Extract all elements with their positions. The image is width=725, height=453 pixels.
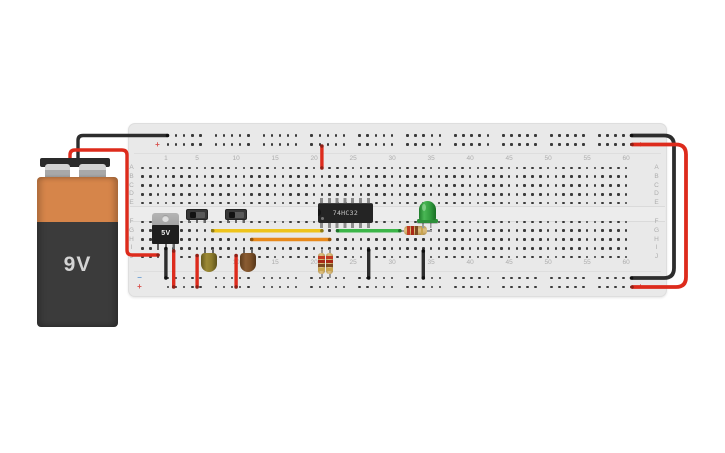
breadboard-hole[interactable] <box>500 175 503 178</box>
breadboard-hole[interactable] <box>360 238 363 241</box>
breadboard-hole[interactable] <box>582 134 585 137</box>
breadboard-hole[interactable] <box>570 238 573 241</box>
breadboard-hole[interactable] <box>366 134 369 137</box>
breadboard-hole[interactable] <box>188 229 191 232</box>
breadboard-hole[interactable] <box>562 238 565 241</box>
breadboard-hole[interactable] <box>484 175 487 178</box>
breadboard-hole[interactable] <box>609 193 612 196</box>
breadboard-hole[interactable] <box>487 134 490 137</box>
breadboard-hole[interactable] <box>531 175 534 178</box>
breadboard-hole[interactable] <box>211 184 214 187</box>
breadboard-hole[interactable] <box>367 238 370 241</box>
breadboard-hole[interactable] <box>614 134 617 137</box>
breadboard-hole[interactable] <box>258 229 261 232</box>
breadboard-hole[interactable] <box>344 229 347 232</box>
breadboard-hole[interactable] <box>282 184 285 187</box>
breadboard-hole[interactable] <box>344 184 347 187</box>
breadboard-hole[interactable] <box>531 238 534 241</box>
breadboard-hole[interactable] <box>500 238 503 241</box>
breadboard-hole[interactable] <box>336 175 339 178</box>
breadboard-hole[interactable] <box>594 184 597 187</box>
breadboard-hole[interactable] <box>594 247 597 250</box>
breadboard-hole[interactable] <box>305 247 308 250</box>
regulator-body[interactable]: 5V <box>152 225 179 244</box>
breadboard-hole[interactable] <box>141 238 144 241</box>
breadboard-hole[interactable] <box>263 134 266 137</box>
breadboard-hole[interactable] <box>422 247 425 250</box>
breadboard-hole[interactable] <box>606 134 609 137</box>
breadboard-hole[interactable] <box>149 247 152 250</box>
breadboard-hole[interactable] <box>414 143 417 146</box>
breadboard-hole[interactable] <box>289 229 292 232</box>
breadboard-hole[interactable] <box>487 143 490 146</box>
breadboard-hole[interactable] <box>199 143 202 146</box>
breadboard-hole[interactable] <box>438 238 441 241</box>
breadboard-hole[interactable] <box>431 134 434 137</box>
breadboard-hole[interactable] <box>319 134 322 137</box>
breadboard-hole[interactable] <box>594 238 597 241</box>
battery-body[interactable]: 9V <box>37 177 118 327</box>
breadboard-hole[interactable] <box>516 238 519 241</box>
breadboard-hole[interactable] <box>191 277 194 280</box>
breadboard-hole[interactable] <box>211 238 214 241</box>
breadboard-hole[interactable] <box>227 175 230 178</box>
breadboard-hole[interactable] <box>204 238 207 241</box>
breadboard-hole[interactable] <box>598 143 601 146</box>
breadboard-hole[interactable] <box>149 238 152 241</box>
breadboard-hole[interactable] <box>211 175 214 178</box>
breadboard-hole[interactable] <box>414 184 417 187</box>
breadboard-hole[interactable] <box>319 143 322 146</box>
breadboard-hole[interactable] <box>574 143 577 146</box>
breadboard-hole[interactable] <box>375 143 378 146</box>
breadboard-hole[interactable] <box>367 247 370 250</box>
breadboard-hole[interactable] <box>266 238 269 241</box>
breadboard-hole[interactable] <box>617 238 620 241</box>
breadboard-hole[interactable] <box>617 175 620 178</box>
breadboard-hole[interactable] <box>406 184 409 187</box>
switch-body[interactable] <box>186 209 208 220</box>
breadboard-hole[interactable] <box>461 184 464 187</box>
breadboard-hole[interactable] <box>141 247 144 250</box>
breadboard-hole[interactable] <box>375 229 378 232</box>
breadboard-hole[interactable] <box>297 247 300 250</box>
breadboard-hole[interactable] <box>500 184 503 187</box>
breadboard-hole[interactable] <box>614 143 617 146</box>
breadboard-hole[interactable] <box>445 229 448 232</box>
breadboard-hole[interactable] <box>477 184 480 187</box>
breadboard-hole[interactable] <box>562 184 565 187</box>
breadboard-hole[interactable] <box>484 193 487 196</box>
switch-body[interactable] <box>225 209 247 220</box>
breadboard-hole[interactable] <box>617 193 620 196</box>
breadboard-hole[interactable] <box>344 175 347 178</box>
breadboard-hole[interactable] <box>263 143 266 146</box>
breadboard-hole[interactable] <box>502 143 505 146</box>
breadboard-hole[interactable] <box>243 184 246 187</box>
breadboard-hole[interactable] <box>609 175 612 178</box>
breadboard-hole[interactable] <box>305 175 308 178</box>
breadboard-hole[interactable] <box>172 193 175 196</box>
breadboard-hole[interactable] <box>502 134 505 137</box>
breadboard-hole[interactable] <box>555 184 558 187</box>
breadboard-hole[interactable] <box>562 247 565 250</box>
breadboard-hole[interactable] <box>383 193 386 196</box>
breadboard-hole[interactable] <box>282 238 285 241</box>
breadboard-hole[interactable] <box>336 238 339 241</box>
breadboard-hole[interactable] <box>578 247 581 250</box>
breadboard-hole[interactable] <box>484 229 487 232</box>
breadboard-hole[interactable] <box>453 238 456 241</box>
breadboard-hole[interactable] <box>454 134 457 137</box>
breadboard-hole[interactable] <box>199 277 202 280</box>
breadboard-hole[interactable] <box>453 247 456 250</box>
breadboard-hole[interactable] <box>211 229 214 232</box>
breadboard-hole[interactable] <box>305 238 308 241</box>
breadboard-hole[interactable] <box>289 247 292 250</box>
breadboard-hole[interactable] <box>258 175 261 178</box>
breadboard-hole[interactable] <box>199 286 202 289</box>
breadboard-hole[interactable] <box>531 184 534 187</box>
breadboard-hole[interactable] <box>297 175 300 178</box>
breadboard-hole[interactable] <box>539 247 542 250</box>
breadboard-hole[interactable] <box>558 134 561 137</box>
breadboard-hole[interactable] <box>422 134 425 137</box>
breadboard-hole[interactable] <box>422 193 425 196</box>
breadboard-hole[interactable] <box>518 143 521 146</box>
breadboard-hole[interactable] <box>523 247 526 250</box>
breadboard-hole[interactable] <box>470 134 473 137</box>
breadboard-hole[interactable] <box>414 175 417 178</box>
breadboard-hole[interactable] <box>609 238 612 241</box>
breadboard-hole[interactable] <box>250 193 253 196</box>
breadboard-hole[interactable] <box>601 175 604 178</box>
breadboard-hole[interactable] <box>562 229 565 232</box>
breadboard-hole[interactable] <box>453 184 456 187</box>
breadboard-hole[interactable] <box>555 193 558 196</box>
breadboard-hole[interactable] <box>360 193 363 196</box>
breadboard-hole[interactable] <box>523 175 526 178</box>
breadboard-hole[interactable] <box>539 184 542 187</box>
breadboard-hole[interactable] <box>562 193 565 196</box>
breadboard-hole[interactable] <box>445 193 448 196</box>
breadboard-hole[interactable] <box>188 184 191 187</box>
breadboard-hole[interactable] <box>570 184 573 187</box>
breadboard-hole[interactable] <box>531 193 534 196</box>
breadboard-hole[interactable] <box>539 238 542 241</box>
breadboard-hole[interactable] <box>630 143 633 146</box>
breadboard-hole[interactable] <box>250 184 253 187</box>
breadboard-hole[interactable] <box>484 184 487 187</box>
breadboard-hole[interactable] <box>453 175 456 178</box>
breadboard-hole[interactable] <box>289 238 292 241</box>
breadboard-hole[interactable] <box>406 238 409 241</box>
breadboard-hole[interactable] <box>360 247 363 250</box>
breadboard-hole[interactable] <box>578 175 581 178</box>
breadboard-hole[interactable] <box>578 238 581 241</box>
switch-knob[interactable] <box>190 212 197 218</box>
breadboard-hole[interactable] <box>219 238 222 241</box>
breadboard-hole[interactable] <box>453 193 456 196</box>
breadboard-hole[interactable] <box>582 143 585 146</box>
breadboard-hole[interactable] <box>282 193 285 196</box>
breadboard-hole[interactable] <box>617 247 620 250</box>
breadboard-hole[interactable] <box>227 184 230 187</box>
breadboard-hole[interactable] <box>243 238 246 241</box>
breadboard-hole[interactable] <box>367 184 370 187</box>
breadboard-hole[interactable] <box>344 193 347 196</box>
breadboard-hole[interactable] <box>266 229 269 232</box>
breadboard-hole[interactable] <box>328 175 331 178</box>
breadboard-hole[interactable] <box>500 247 503 250</box>
breadboard-hole[interactable] <box>188 247 191 250</box>
breadboard-hole[interactable] <box>219 247 222 250</box>
breadboard-hole[interactable] <box>297 184 300 187</box>
breadboard-hole[interactable] <box>258 184 261 187</box>
breadboard-hole[interactable] <box>165 193 168 196</box>
breadboard-hole[interactable] <box>321 238 324 241</box>
breadboard-hole[interactable] <box>406 143 409 146</box>
breadboard-hole[interactable] <box>609 229 612 232</box>
breadboard-hole[interactable] <box>578 229 581 232</box>
breadboard-hole[interactable] <box>438 247 441 250</box>
breadboard-hole[interactable] <box>558 143 561 146</box>
breadboard-hole[interactable] <box>243 193 246 196</box>
breadboard-hole[interactable] <box>570 247 573 250</box>
breadboard-hole[interactable] <box>492 184 495 187</box>
breadboard-hole[interactable] <box>258 247 261 250</box>
breadboard-hole[interactable] <box>598 134 601 137</box>
breadboard-hole[interactable] <box>534 143 537 146</box>
breadboard-hole[interactable] <box>250 238 253 241</box>
breadboard-hole[interactable] <box>516 184 519 187</box>
breadboard-hole[interactable] <box>422 143 425 146</box>
breadboard-hole[interactable] <box>297 238 300 241</box>
breadboard-hole[interactable] <box>367 229 370 232</box>
breadboard-hole[interactable] <box>523 229 526 232</box>
breadboard-hole[interactable] <box>500 193 503 196</box>
breadboard-hole[interactable] <box>383 247 386 250</box>
breadboard-hole[interactable] <box>534 134 537 137</box>
breadboard-hole[interactable] <box>266 193 269 196</box>
breadboard-hole[interactable] <box>438 184 441 187</box>
breadboard-hole[interactable] <box>406 134 409 137</box>
breadboard-hole[interactable] <box>555 238 558 241</box>
breadboard-hole[interactable] <box>492 193 495 196</box>
capacitor-body[interactable] <box>240 253 256 273</box>
breadboard-hole[interactable] <box>477 247 480 250</box>
breadboard-hole[interactable] <box>622 143 625 146</box>
breadboard-hole[interactable] <box>383 175 386 178</box>
breadboard-hole[interactable] <box>570 175 573 178</box>
breadboard-hole[interactable] <box>570 193 573 196</box>
breadboard-hole[interactable] <box>566 143 569 146</box>
breadboard-hole[interactable] <box>358 143 361 146</box>
breadboard-hole[interactable] <box>539 175 542 178</box>
breadboard-hole[interactable] <box>297 229 300 232</box>
breadboard-hole[interactable] <box>510 143 513 146</box>
breadboard-hole[interactable] <box>461 238 464 241</box>
breadboard-hole[interactable] <box>336 184 339 187</box>
breadboard-hole[interactable] <box>383 238 386 241</box>
breadboard-hole[interactable] <box>305 184 308 187</box>
breadboard-hole[interactable] <box>172 175 175 178</box>
resistor-body[interactable] <box>318 253 325 274</box>
breadboard-hole[interactable] <box>526 134 529 137</box>
breadboard-hole[interactable] <box>445 238 448 241</box>
breadboard-hole[interactable] <box>414 247 417 250</box>
breadboard-hole[interactable] <box>406 175 409 178</box>
breadboard-hole[interactable] <box>219 229 222 232</box>
breadboard-hole[interactable] <box>461 193 464 196</box>
breadboard-hole[interactable] <box>266 184 269 187</box>
breadboard-hole[interactable] <box>518 134 521 137</box>
breadboard-hole[interactable] <box>305 229 308 232</box>
breadboard-hole[interactable] <box>523 193 526 196</box>
breadboard-hole[interactable] <box>321 184 324 187</box>
breadboard-hole[interactable] <box>219 184 222 187</box>
breadboard-hole[interactable] <box>414 238 417 241</box>
resistor-body[interactable] <box>326 253 333 274</box>
breadboard-hole[interactable] <box>250 229 253 232</box>
breadboard-hole[interactable] <box>258 193 261 196</box>
breadboard-hole[interactable] <box>414 134 417 137</box>
breadboard-hole[interactable] <box>461 229 464 232</box>
breadboard-hole[interactable] <box>227 193 230 196</box>
breadboard-hole[interactable] <box>617 184 620 187</box>
breadboard-hole[interactable] <box>601 193 604 196</box>
breadboard-hole[interactable] <box>461 175 464 178</box>
breadboard-hole[interactable] <box>550 134 553 137</box>
breadboard-hole[interactable] <box>539 229 542 232</box>
breadboard-hole[interactable] <box>227 238 230 241</box>
breadboard-hole[interactable] <box>310 134 313 137</box>
breadboard-hole[interactable] <box>247 143 250 146</box>
breadboard-hole[interactable] <box>247 286 250 289</box>
breadboard-hole[interactable] <box>477 238 480 241</box>
breadboard-hole[interactable] <box>609 247 612 250</box>
breadboard-hole[interactable] <box>438 193 441 196</box>
breadboard-hole[interactable] <box>305 193 308 196</box>
breadboard-hole[interactable] <box>289 184 292 187</box>
breadboard-hole[interactable] <box>523 184 526 187</box>
breadboard-hole[interactable] <box>375 184 378 187</box>
breadboard-hole[interactable] <box>247 277 250 280</box>
battery-terminal-positive[interactable] <box>45 164 70 179</box>
breadboard-hole[interactable] <box>531 247 534 250</box>
breadboard-hole[interactable] <box>570 229 573 232</box>
breadboard-hole[interactable] <box>578 193 581 196</box>
breadboard-hole[interactable] <box>461 247 464 250</box>
switch-knob[interactable] <box>229 212 236 218</box>
breadboard-hole[interactable] <box>165 184 168 187</box>
breadboard-hole[interactable] <box>414 193 417 196</box>
breadboard-hole[interactable] <box>516 247 519 250</box>
breadboard-hole[interactable] <box>601 238 604 241</box>
breadboard-hole[interactable] <box>566 134 569 137</box>
breadboard-hole[interactable] <box>188 193 191 196</box>
breadboard-hole[interactable] <box>531 229 534 232</box>
breadboard-hole[interactable] <box>258 238 261 241</box>
breadboard-hole[interactable] <box>366 143 369 146</box>
breadboard-hole[interactable] <box>344 238 347 241</box>
breadboard-hole[interactable] <box>266 247 269 250</box>
breadboard-hole[interactable] <box>406 193 409 196</box>
breadboard-hole[interactable] <box>141 184 144 187</box>
breadboard-hole[interactable] <box>180 238 183 241</box>
breadboard-hole[interactable] <box>550 143 553 146</box>
breadboard-hole[interactable] <box>289 175 292 178</box>
breadboard-hole[interactable] <box>336 229 339 232</box>
breadboard-hole[interactable] <box>422 175 425 178</box>
breadboard-hole[interactable] <box>578 184 581 187</box>
breadboard-hole[interactable] <box>526 143 529 146</box>
breadboard-hole[interactable] <box>219 175 222 178</box>
breadboard-hole[interactable] <box>609 184 612 187</box>
breadboard-hole[interactable] <box>492 175 495 178</box>
breadboard-hole[interactable] <box>172 184 175 187</box>
breadboard-hole[interactable] <box>336 193 339 196</box>
breadboard-hole[interactable] <box>383 184 386 187</box>
breadboard-hole[interactable] <box>622 134 625 137</box>
breadboard-hole[interactable] <box>462 143 465 146</box>
breadboard-hole[interactable] <box>180 247 183 250</box>
breadboard-hole[interactable] <box>375 247 378 250</box>
breadboard-hole[interactable] <box>399 247 402 250</box>
breadboard-hole[interactable] <box>470 143 473 146</box>
breadboard-hole[interactable] <box>188 175 191 178</box>
breadboard-hole[interactable] <box>360 184 363 187</box>
breadboard-hole[interactable] <box>510 134 513 137</box>
breadboard-hole[interactable] <box>523 238 526 241</box>
breadboard-hole[interactable] <box>282 247 285 250</box>
breadboard-hole[interactable] <box>375 193 378 196</box>
breadboard-hole[interactable] <box>344 247 347 250</box>
breadboard-hole[interactable] <box>492 229 495 232</box>
breadboard-hole[interactable] <box>601 247 604 250</box>
breadboard-hole[interactable] <box>399 184 402 187</box>
breadboard-hole[interactable] <box>297 193 300 196</box>
breadboard-hole[interactable] <box>219 193 222 196</box>
breadboard-hole[interactable] <box>367 193 370 196</box>
breadboard-hole[interactable] <box>562 175 565 178</box>
breadboard-hole[interactable] <box>399 193 402 196</box>
breadboard-hole[interactable] <box>445 175 448 178</box>
breadboard-hole[interactable] <box>478 134 481 137</box>
breadboard-hole[interactable] <box>422 238 425 241</box>
breadboard-hole[interactable] <box>445 247 448 250</box>
breadboard-hole[interactable] <box>250 175 253 178</box>
breadboard-hole[interactable] <box>247 134 250 137</box>
breadboard-hole[interactable] <box>358 134 361 137</box>
breadboard-hole[interactable] <box>375 238 378 241</box>
breadboard-hole[interactable] <box>574 134 577 137</box>
breadboard-hole[interactable] <box>484 247 487 250</box>
breadboard-hole[interactable] <box>462 134 465 137</box>
breadboard-hole[interactable] <box>191 134 194 137</box>
breadboard-hole[interactable] <box>492 247 495 250</box>
breadboard-hole[interactable] <box>180 229 183 232</box>
breadboard-hole[interactable] <box>406 247 409 250</box>
breadboard-hole[interactable] <box>478 143 481 146</box>
breadboard-hole[interactable] <box>454 143 457 146</box>
breadboard-hole[interactable] <box>149 175 152 178</box>
breadboard-hole[interactable] <box>227 247 230 250</box>
breadboard-hole[interactable] <box>617 229 620 232</box>
battery-terminal-negative[interactable] <box>79 164 106 179</box>
breadboard-hole[interactable] <box>484 238 487 241</box>
breadboard-hole[interactable] <box>601 229 604 232</box>
